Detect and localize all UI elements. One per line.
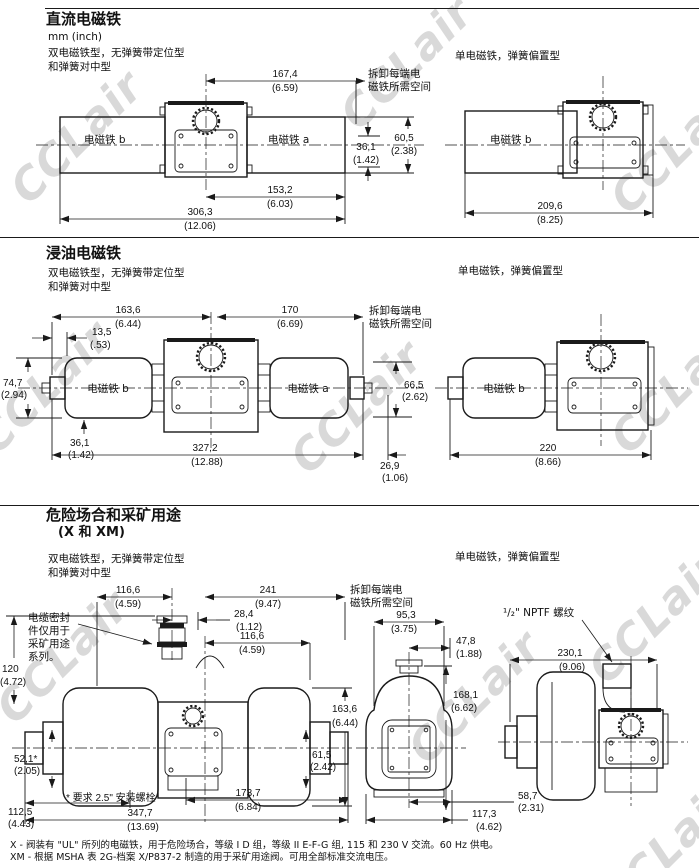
dim-label: (1.42) <box>68 450 94 461</box>
dim-label: 61,5 <box>312 750 332 761</box>
dim-label: 168,1 <box>453 690 478 701</box>
oil-double-type-label-2: 和弹簧对中型 <box>48 280 111 294</box>
datasheet-page: CCLair CCLair CCLair CCLair CCLair CCLai… <box>0 0 699 868</box>
conduit-boss <box>196 656 224 668</box>
dim-label: (4.62) <box>476 822 502 833</box>
dim-label: (6.44) <box>332 718 358 729</box>
dim-label: 112,5 <box>8 807 33 818</box>
dim-label: (.53) <box>90 340 111 351</box>
dim-label: 116,6 <box>240 631 265 642</box>
dc-drawings: 167,4 (6.59) 拆卸每端电 磁铁所需空间 36,1 (1.42) 60… <box>0 66 699 236</box>
dim-label: 26,9 <box>380 461 400 472</box>
removal-space-note: 拆卸每端电 <box>350 583 403 596</box>
haz-single-drawing: ¹/₂" NPTF 螺纹 230,1 (9.06) <box>498 606 688 806</box>
dim-label: 173,7 <box>235 788 260 799</box>
dim-label: (2.62) <box>402 392 428 403</box>
solenoid-a-label: 电磁铁 a <box>287 382 328 395</box>
solenoid-b-label: 电磁铁 b <box>87 382 129 395</box>
oil-drawings: 163,6 (6.44) 170 (6.69) 拆卸每端电 磁铁所需空间 13,… <box>0 300 699 500</box>
oil-single-type-label: 单电磁铁，弹簧偏置型 <box>458 264 563 278</box>
solenoid-b-label: 电磁铁 b <box>483 382 525 395</box>
dim-label: (4.59) <box>115 599 141 610</box>
dim-label: 306,3 <box>187 207 212 218</box>
dim-label: (12.88) <box>191 457 223 468</box>
dim-label: 167,4 <box>272 69 297 80</box>
cable-seal-note: 件仅用于 <box>28 625 70 637</box>
dim-label: (6.59) <box>272 83 298 94</box>
dim-label: (9.47) <box>255 599 281 610</box>
dim-label: 163,6 <box>332 704 357 715</box>
dim-label: 120 <box>2 664 19 675</box>
top-rule <box>45 8 699 9</box>
section-subtitle-haz: (X 和 XM) <box>58 526 125 540</box>
dim-label: (8.25) <box>537 215 563 226</box>
dim-label: (1.88) <box>456 649 482 660</box>
dim-label: 327,2 <box>192 443 217 454</box>
oil-double-drawing: 163,6 (6.44) 170 (6.69) 拆卸每端电 磁铁所需空间 13,… <box>1 304 432 484</box>
dim-label: 66,5 <box>404 380 424 391</box>
dim-label: 220 <box>540 443 557 454</box>
section-title-haz: 危险场合和采矿用途 <box>46 508 181 522</box>
dim-label: 163,6 <box>115 305 140 316</box>
haz-single-type-label: 单电磁铁，弹簧偏置型 <box>455 550 560 564</box>
dc-double-type-label-2: 和弹簧对中型 <box>48 60 111 74</box>
solenoid-a-label: 电磁铁 a <box>268 133 309 146</box>
dim-label: (6.44) <box>115 319 141 330</box>
dim-label: 230,1 <box>557 648 582 659</box>
footnote-xm: XM - 根据 MSHA 表 2G-档案 X/P837-2 制造的用于采矿用途阀… <box>10 852 394 864</box>
dim-label: (6.84) <box>235 802 261 813</box>
removal-space-note: 磁铁所需空间 <box>369 317 432 330</box>
units-label: mm (inch) <box>48 30 102 44</box>
removal-space-note: 磁铁所需空间 <box>350 596 413 609</box>
dim-label: (6.69) <box>277 319 303 330</box>
dim-label: (2.31) <box>518 803 544 814</box>
haz-double-type-label-1: 双电磁铁型，无弹簧带定位型 <box>48 552 185 566</box>
haz-drawings: 116,6 (4.59) 241 (9.47) 拆卸每端电 磁铁所需空间 28,… <box>0 580 699 838</box>
dim-label: 58,7 <box>518 791 538 802</box>
removal-space-note: 磁铁所需空间 <box>368 80 431 93</box>
dim-label: 60,5 <box>394 133 414 144</box>
haz-end-view-drawing: 95,3 (3.75) 47,8 (1.88) 168,1 (6.62) 58,… <box>356 610 544 833</box>
cable-seal-note: 系列。 <box>28 650 60 663</box>
dim-label: (1.06) <box>382 473 408 484</box>
footnote-x: X - 阀装有 "UL" 所列的电磁铁，用于危险场合，等级 I D 组，等级 I… <box>10 840 499 852</box>
dim-label: 36,1 <box>70 438 90 449</box>
dim-label: (2.38) <box>391 146 417 157</box>
solenoid-b-label: 电磁铁 b <box>84 133 126 146</box>
dim-label: (4.72) <box>0 677 26 688</box>
conduit-fitting <box>603 664 631 688</box>
dim-label: 153,2 <box>267 185 292 196</box>
mounting-bolt-note: * 要求 2.5" 安装螺栓 <box>66 791 156 804</box>
dc-single-type-label: 单电磁铁，弹簧偏置型 <box>455 49 560 63</box>
dim-label: (2.94) <box>1 390 27 401</box>
manual-override-knob-icon <box>183 706 203 726</box>
dim-label: 170 <box>282 305 299 316</box>
section-title-dc: 直流电磁铁 <box>46 12 121 26</box>
dim-label: 28,4 <box>234 609 254 620</box>
oil-double-type-label-1: 双电磁铁型，无弹簧带定位型 <box>48 266 185 280</box>
dim-label: 241 <box>260 585 277 596</box>
dim-label: (2.05) <box>14 766 40 777</box>
dim-label: (6.03) <box>267 199 293 210</box>
dc-single-drawing: 209,6 (8.25) 电磁铁 b <box>445 76 685 226</box>
dim-label: 36,1 <box>356 142 376 153</box>
dim-label: (8.66) <box>535 457 561 468</box>
dim-label: (4.59) <box>239 645 265 656</box>
dim-label: (6.62) <box>451 703 477 714</box>
haz-double-type-label-2: 和弹簧对中型 <box>48 566 111 580</box>
dim-label: 52,1* <box>14 754 37 765</box>
solenoid-b-label: 电磁铁 b <box>490 133 532 146</box>
dim-label: (12.06) <box>184 221 216 232</box>
dim-label: 47,8 <box>456 636 476 647</box>
section-divider-1 <box>0 237 699 238</box>
dim-label: 74,7 <box>3 378 23 389</box>
dim-label: (3.75) <box>391 624 417 635</box>
nptf-thread-label: ¹/₂" NPTF 螺纹 <box>503 606 575 619</box>
section-title-oil: 浸油电磁铁 <box>46 246 121 260</box>
dim-label: 209,6 <box>537 201 562 212</box>
dim-label: (4.43) <box>8 819 34 830</box>
dim-label: 347,7 <box>127 808 152 819</box>
cable-seal-note: 电缆密封 <box>28 611 70 624</box>
cable-seal-note: 采矿用途 <box>28 637 70 650</box>
haz-double-drawing: 116,6 (4.59) 241 (9.47) 拆卸每端电 磁铁所需空间 28,… <box>0 583 413 833</box>
dc-double-type-label-1: 双电磁铁型，无弹簧带定位型 <box>48 46 185 60</box>
removal-space-note: 拆卸每端电 <box>369 304 422 317</box>
dim-label: (1.42) <box>353 155 379 166</box>
dim-label: 117,3 <box>472 809 497 820</box>
dim-label: 95,3 <box>396 610 416 621</box>
dim-label: 13,5 <box>92 327 112 338</box>
removal-space-note: 拆卸每端电 <box>368 67 421 80</box>
dim-label: 116,6 <box>116 585 141 596</box>
oil-single-drawing: 220 (8.66) 电磁铁 b <box>435 314 688 468</box>
dim-label: (13.69) <box>127 822 159 833</box>
dim-label: (2.42) <box>310 762 336 773</box>
dc-double-drawing: 167,4 (6.59) 拆卸每端电 磁铁所需空间 36,1 (1.42) 60… <box>36 67 431 232</box>
